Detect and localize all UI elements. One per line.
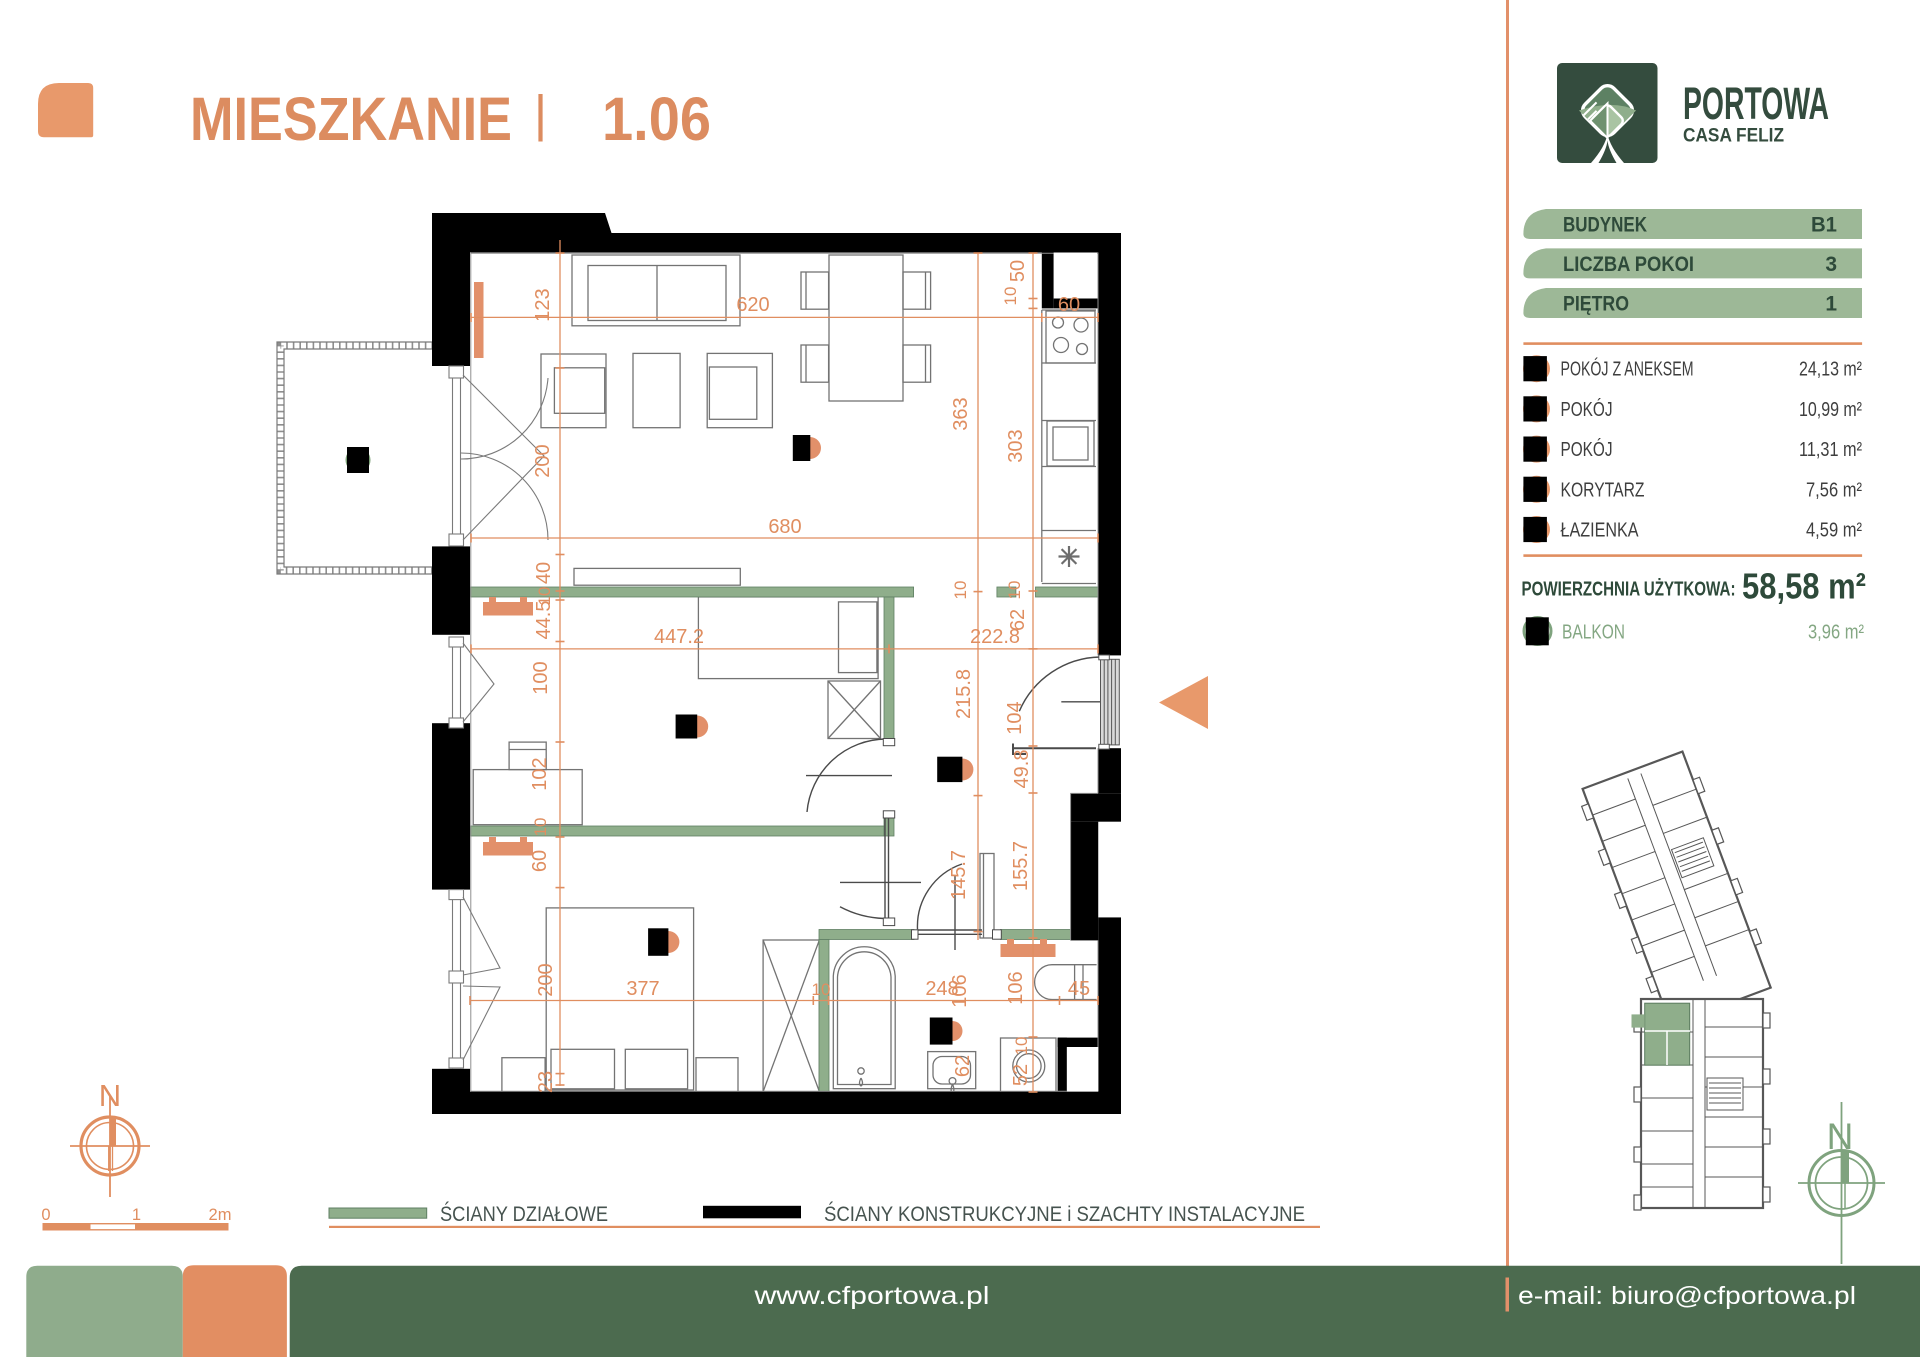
svg-text:10: 10 [1001,287,1020,306]
svg-text:POWIERZCHNIA UŻYTKOWA:: POWIERZCHNIA UŻYTKOWA: [1522,578,1736,601]
svg-text:40: 40 [533,562,555,584]
svg-text:303: 303 [1005,429,1027,462]
svg-text:CASA FELIZ: CASA FELIZ [1683,126,1784,147]
svg-text:10: 10 [951,581,970,600]
svg-text:145.7: 145.7 [948,850,970,900]
svg-text:100: 100 [530,661,552,694]
svg-text:POKÓJ: POKÓJ [1561,438,1613,461]
svg-text:200: 200 [532,444,554,477]
svg-text:3,96 m²: 3,96 m² [1808,622,1864,644]
svg-text:104: 104 [1004,701,1026,734]
svg-text:4,59 m²: 4,59 m² [1806,520,1862,542]
svg-text:POKÓJ: POKÓJ [1561,398,1613,421]
svg-text:1: 1 [132,1206,141,1224]
svg-text:155.7: 155.7 [1010,841,1032,891]
svg-text:BUDYNEK: BUDYNEK [1563,214,1647,237]
svg-text:www.cfportowa.pl: www.cfportowa.pl [753,1282,989,1310]
svg-text:58,58 m²: 58,58 m² [1742,566,1866,607]
svg-text:24,13 m²: 24,13 m² [1799,359,1862,381]
svg-text:620: 620 [736,294,769,316]
svg-text:2m: 2m [209,1206,232,1224]
svg-text:ŚCIANY KONSTRUKCYJNE i SZACHTY: ŚCIANY KONSTRUKCYJNE i SZACHTY INSTALACY… [824,1201,1305,1226]
svg-text:10: 10 [1012,1037,1031,1056]
svg-text:MIESZKANIE: MIESZKANIE [190,85,512,153]
svg-text:3: 3 [1825,253,1837,276]
svg-text:45: 45 [1068,978,1090,1000]
svg-text:50: 50 [1007,260,1029,282]
svg-text:680: 680 [768,516,801,538]
svg-text:10,99 m²: 10,99 m² [1799,399,1862,421]
svg-text:10: 10 [1005,581,1024,600]
svg-text:11,31 m²: 11,31 m² [1799,439,1862,461]
svg-text:200: 200 [535,963,557,996]
svg-text:N: N [1827,1116,1854,1157]
svg-text:363: 363 [950,397,972,430]
svg-text:447.2: 447.2 [654,626,704,648]
svg-text:106: 106 [949,974,971,1007]
svg-text:0: 0 [41,1206,50,1224]
svg-text:10: 10 [531,818,550,837]
svg-text:10: 10 [812,980,831,999]
svg-text:1.06: 1.06 [602,85,711,153]
svg-text:377: 377 [626,978,659,1000]
svg-text:102: 102 [529,757,551,790]
svg-text:ŚCIANY DZIAŁOWE: ŚCIANY DZIAŁOWE [440,1201,608,1226]
svg-text:62: 62 [1007,609,1029,631]
svg-text:123: 123 [532,288,554,321]
svg-text:215.8: 215.8 [953,669,975,719]
svg-text:44.5: 44.5 [533,601,555,640]
svg-text:23: 23 [535,1071,557,1093]
svg-text:60: 60 [529,850,551,872]
svg-text:e-mail: biuro@cfportowa.pl: e-mail: biuro@cfportowa.pl [1518,1282,1856,1310]
svg-text:PIĘTRO: PIĘTRO [1563,293,1629,316]
svg-text:ŁAZIENKA: ŁAZIENKA [1561,520,1640,542]
svg-text:7,56 m²: 7,56 m² [1806,479,1862,501]
svg-text:1: 1 [1825,293,1837,316]
svg-text:PORTOWA: PORTOWA [1683,78,1829,129]
svg-text:N: N [99,1078,121,1113]
svg-text:62: 62 [952,1055,974,1077]
svg-text:POKÓJ Z ANEKSEM: POKÓJ Z ANEKSEM [1561,358,1694,381]
svg-text:52: 52 [1010,1064,1032,1086]
svg-text:60: 60 [1058,294,1080,316]
svg-text:B1: B1 [1811,214,1837,237]
svg-text:49.8: 49.8 [1011,750,1033,789]
svg-text:106: 106 [1005,971,1027,1004]
svg-text:BALKON: BALKON [1562,622,1625,644]
svg-text:KORYTARZ: KORYTARZ [1561,479,1645,501]
svg-text:LICZBA POKOI: LICZBA POKOI [1563,253,1694,276]
